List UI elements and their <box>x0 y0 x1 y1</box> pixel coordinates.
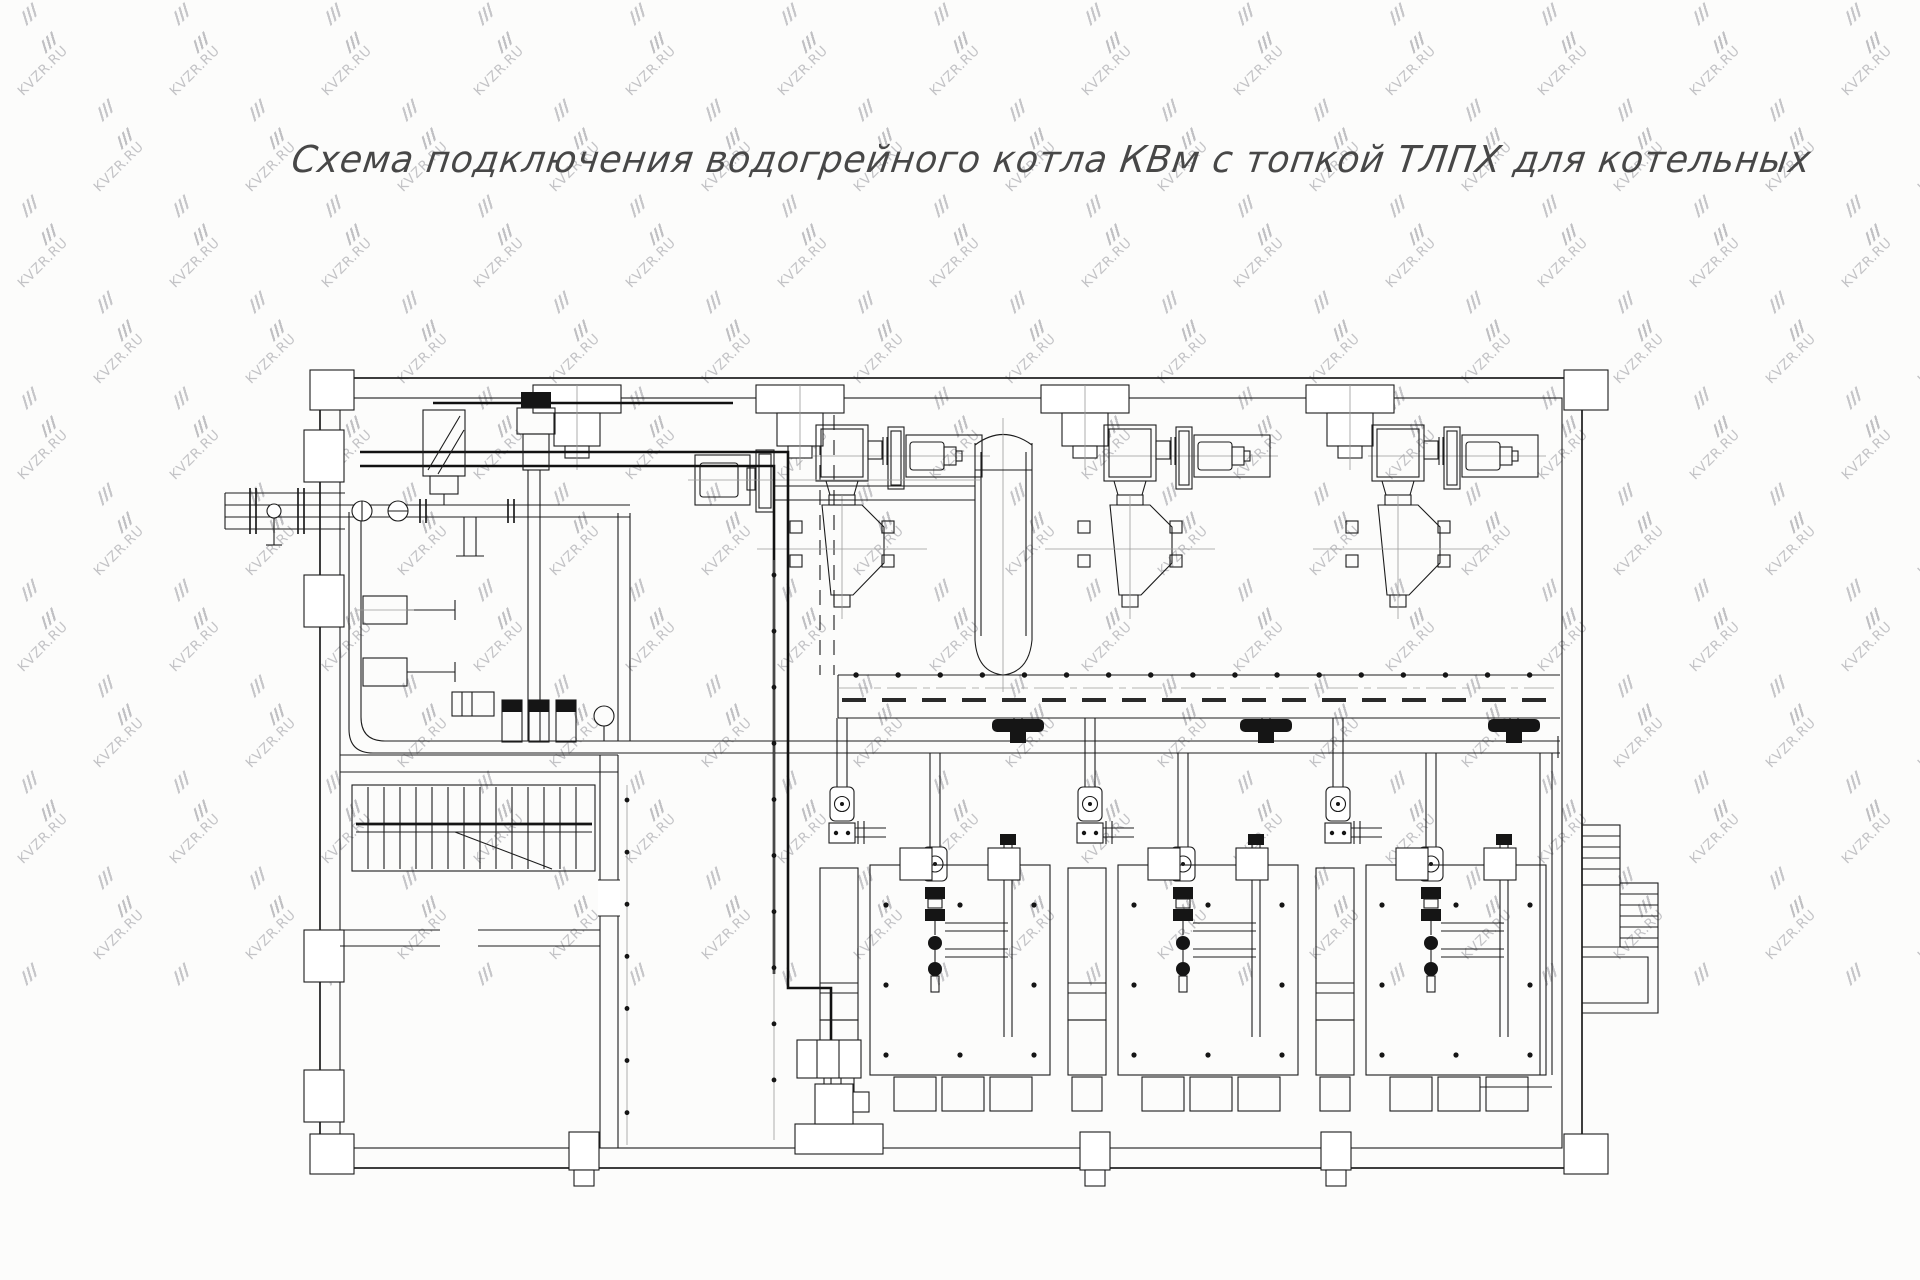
expansion-vessels <box>502 700 576 742</box>
valve <box>267 504 281 518</box>
scrubber-tank <box>975 418 1032 692</box>
pipe-mains <box>225 403 1560 1145</box>
drawing-title: Схема подключения водогрейного котла КВм… <box>289 138 1585 181</box>
boiler-unit-2 <box>1068 718 1298 1111</box>
deaerator-column <box>521 392 551 408</box>
bottom-pilasters <box>569 1132 1351 1186</box>
feed-pump <box>363 658 407 686</box>
conveyor-duct <box>838 675 1560 718</box>
page: KVZR.RUKVZR.RUKVZR.RUKVZR.RUKVZR.RUKVZR.… <box>0 0 1920 1280</box>
exterior-staircase <box>1582 825 1658 1013</box>
scheme-drawing <box>0 0 1920 1280</box>
wall-pilaster <box>304 430 344 482</box>
staircase-left <box>352 785 595 871</box>
boiler-unit-3 <box>1316 718 1546 1111</box>
building-outline <box>304 370 1608 1174</box>
